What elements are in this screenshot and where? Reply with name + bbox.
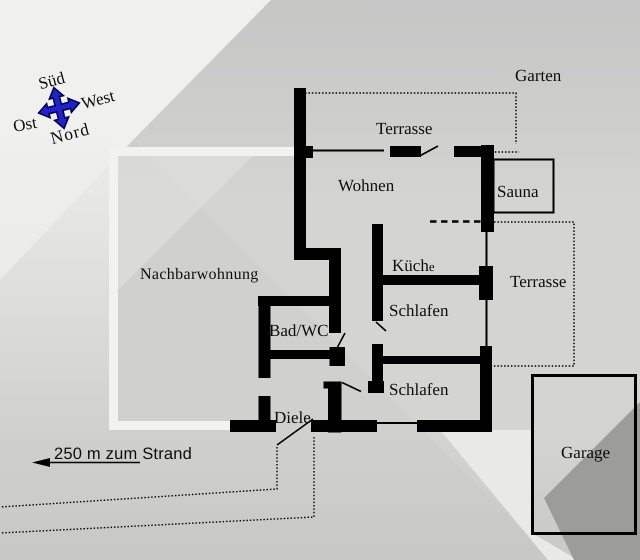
svg-text:Nachbarwohnung: Nachbarwohnung <box>140 266 259 283</box>
svg-text:Garage: Garage <box>561 443 610 462</box>
svg-text:Sauna: Sauna <box>497 182 539 201</box>
svg-text:Schlafen: Schlafen <box>389 301 449 320</box>
svg-text:Küche: Küche <box>392 256 435 275</box>
svg-text:Bad/WC: Bad/WC <box>269 321 329 340</box>
svg-text:250 m zum Strand: 250 m zum Strand <box>54 445 192 463</box>
svg-text:Garten: Garten <box>515 66 562 85</box>
svg-text:Wohnen: Wohnen <box>338 176 395 195</box>
svg-text:Diele: Diele <box>274 408 311 427</box>
svg-text:Terrasse: Terrasse <box>376 119 432 138</box>
svg-text:Schlafen: Schlafen <box>389 380 449 399</box>
svg-text:Terrasse: Terrasse <box>510 272 566 291</box>
